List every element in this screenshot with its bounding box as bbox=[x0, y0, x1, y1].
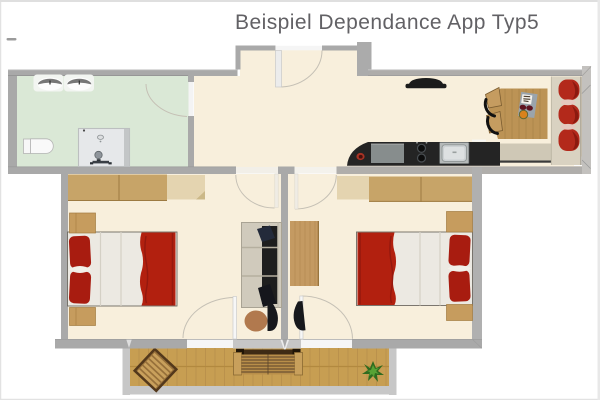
svg-text:Beispiel Dependance App Typ5: Beispiel Dependance App Typ5 bbox=[235, 11, 539, 34]
